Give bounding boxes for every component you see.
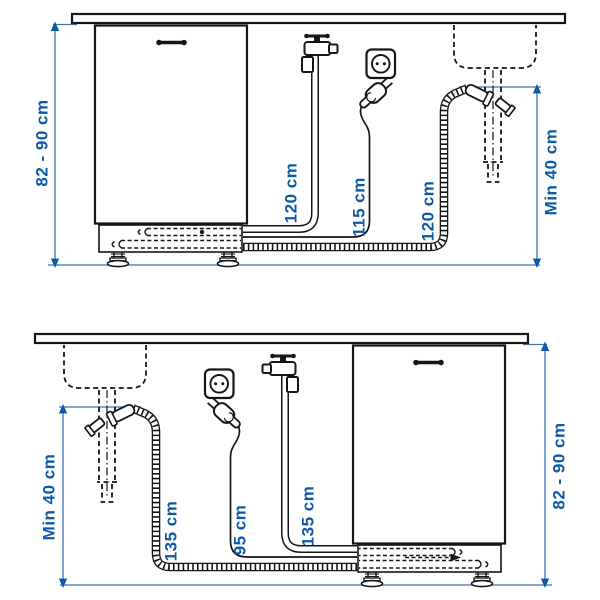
drain-height-label: Min 40 cm [40, 454, 59, 541]
cabinet-height-label: 82 - 90 cm [550, 422, 569, 509]
installation-diagram: 82 - 90 cm 120 cm 115 cm 120 cm Min 40 c… [0, 0, 600, 600]
drain-hose-length-label: 120 cm [419, 181, 438, 242]
power-cord-length-label: 95 cm [231, 505, 250, 556]
supply-hose-length-label: 135 cm [299, 486, 318, 547]
bottom-diagram-linework [35, 334, 552, 588]
supply-hose-length-label: 120 cm [282, 163, 301, 224]
drain-hose-length-label: 135 cm [162, 501, 181, 562]
diagram-page: 82 - 90 cm 120 cm 115 cm 120 cm Min 40 c… [0, 0, 600, 600]
drain-height-label: Min 40 cm [542, 129, 561, 216]
hose-route-dot [200, 230, 204, 234]
top-diagram-linework [48, 14, 565, 268]
power-cord-length-label: 115 cm [350, 177, 369, 237]
cabinet-height-label: 82 - 90 cm [33, 99, 52, 186]
